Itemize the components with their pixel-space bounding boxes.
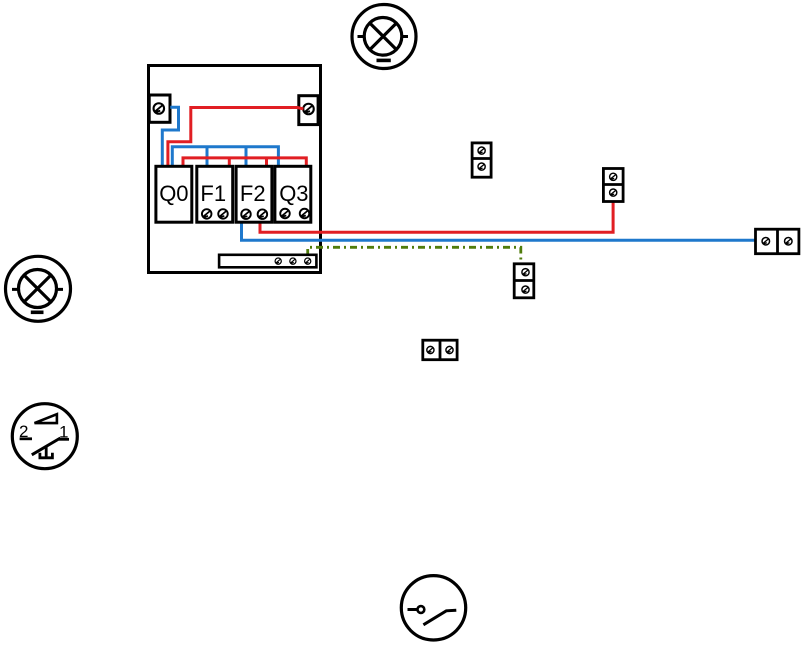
svg-text:Q3: Q3 (279, 181, 308, 206)
svg-text:Q0: Q0 (159, 181, 188, 206)
svg-text:F1: F1 (200, 181, 226, 206)
svg-text:F2: F2 (240, 181, 266, 206)
